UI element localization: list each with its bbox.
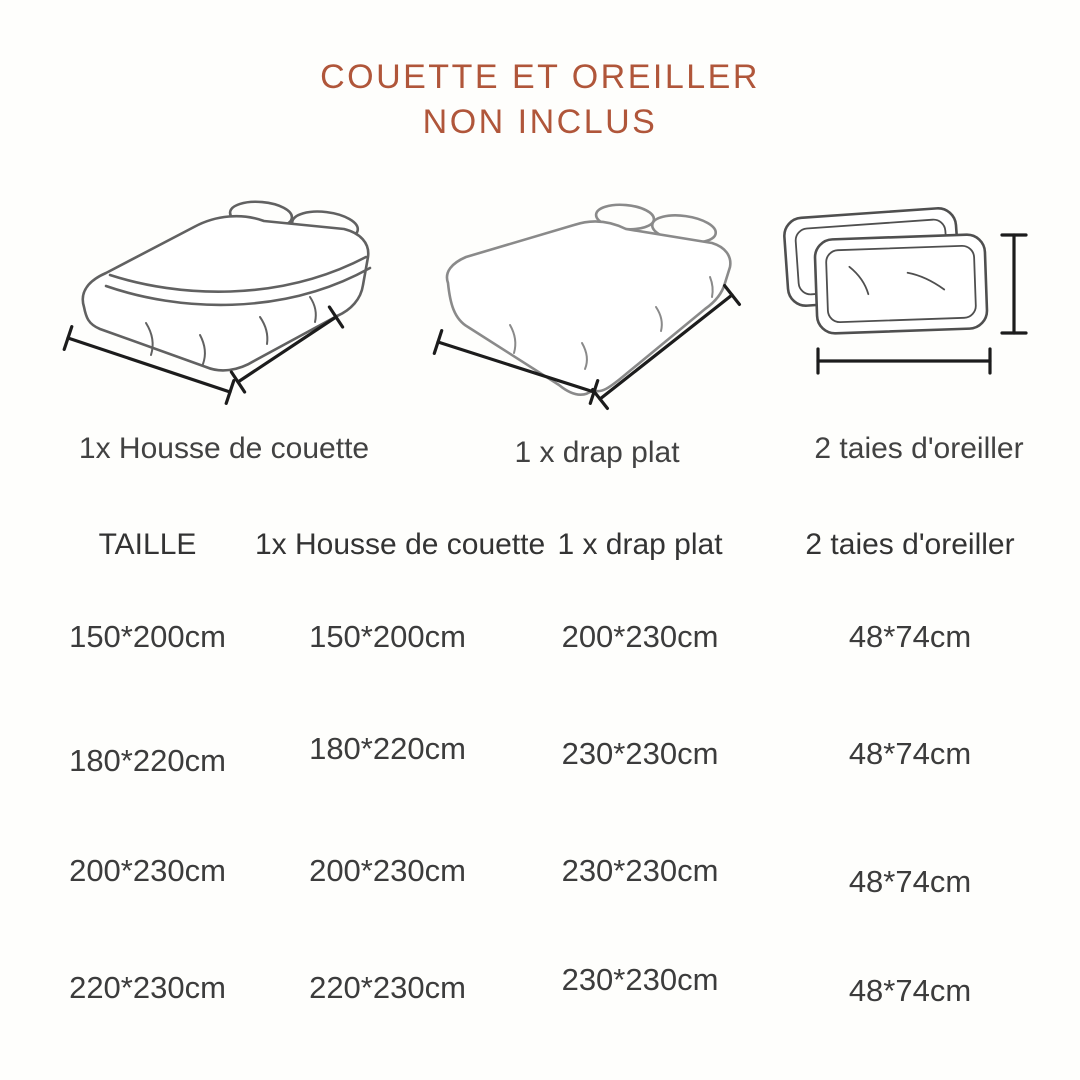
size-cell: 200*230cm: [255, 853, 520, 889]
size-cell: 230*230cm: [520, 962, 760, 998]
page-title: COUETTE ET OREILLER NON INCLUS: [0, 55, 1080, 145]
size-table-header: TAILLE 1x Housse de couette 1 x drap pla…: [40, 522, 1060, 568]
figure-duvet-cover: 1x Housse de couette: [48, 185, 400, 466]
size-cell: 200*230cm: [520, 619, 760, 655]
size-cell: 230*230cm: [520, 853, 760, 889]
flat-sheet-bed-icon: [424, 185, 770, 430]
duvet-cover-bed-icon: [48, 185, 400, 430]
size-table: TAILLE 1x Housse de couette 1 x drap pla…: [40, 522, 1060, 1046]
figure-label-pillowcases: 2 taies d'oreiller: [776, 432, 1062, 466]
title-line-2: NON INCLUS: [0, 100, 1080, 145]
figure-label-duvet-cover: 1x Housse de couette: [48, 432, 400, 466]
front-pillowcase: [814, 234, 987, 334]
column-header-taies: 2 taies d'oreiller: [760, 528, 1060, 562]
table-row: 220*230cm 220*230cm 230*230cm 48*74cm: [40, 929, 1060, 1046]
size-cell: 150*200cm: [255, 619, 520, 655]
size-cell: 220*230cm: [40, 970, 255, 1006]
table-row: 150*200cm 150*200cm 200*230cm 48*74cm: [40, 578, 1060, 695]
figure-label-flat-sheet: 1 x drap plat: [424, 436, 770, 470]
size-cell: 180*220cm: [40, 743, 255, 779]
figure-flat-sheet: 1 x drap plat: [424, 185, 770, 470]
column-header-taille: TAILLE: [40, 528, 255, 562]
size-cell: 48*74cm: [760, 864, 1060, 900]
table-row: 180*220cm 180*220cm 230*230cm 48*74cm: [40, 695, 1060, 812]
size-cell: 200*230cm: [40, 853, 255, 889]
sheet-body: [447, 222, 730, 395]
size-cell: 48*74cm: [760, 973, 1060, 1009]
size-cell: 48*74cm: [760, 619, 1060, 655]
column-header-drap-plat: 1 x drap plat: [520, 528, 760, 562]
size-table-body: 150*200cm 150*200cm 200*230cm 48*74cm 18…: [40, 578, 1060, 1046]
size-cell: 230*230cm: [520, 736, 760, 772]
size-chart-infographic: COUETTE ET OREILLER NON INCLUS: [0, 0, 1080, 1080]
size-cell: 150*200cm: [40, 619, 255, 655]
size-cell: 48*74cm: [760, 736, 1060, 772]
figure-pillowcases: 2 taies d'oreiller: [776, 185, 1062, 466]
column-header-housse: 1x Housse de couette: [255, 528, 520, 562]
size-cell: 180*220cm: [255, 731, 520, 767]
title-line-1: COUETTE ET OREILLER: [0, 55, 1080, 100]
table-row: 200*230cm 200*230cm 230*230cm 48*74cm: [40, 812, 1060, 929]
pillowcases-icon: [776, 185, 1062, 430]
size-cell: 220*230cm: [255, 970, 520, 1006]
